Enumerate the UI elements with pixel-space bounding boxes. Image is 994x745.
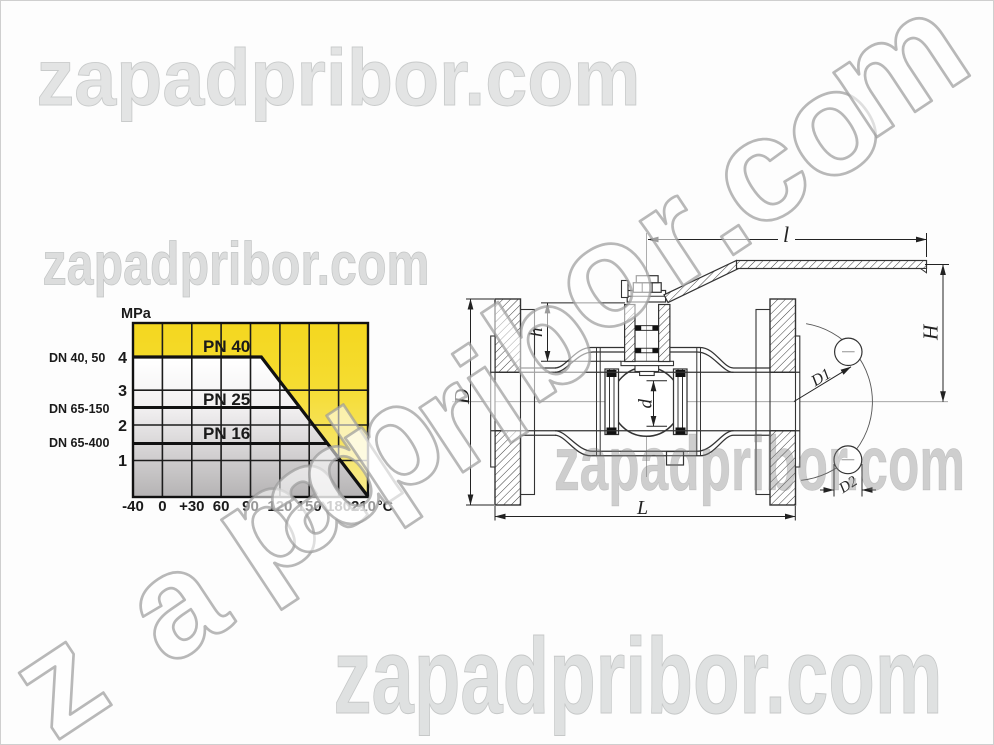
svg-text:3: 3 (118, 383, 127, 400)
svg-text:H: H (919, 323, 943, 341)
svg-text:0: 0 (158, 498, 166, 515)
svg-text:2: 2 (118, 418, 127, 435)
svg-text:DN 65-150: DN 65-150 (49, 402, 109, 416)
svg-text:zapadpribor.com: zapadpribor.com (37, 33, 641, 122)
svg-text:MPa: MPa (121, 306, 152, 322)
svg-text:DN 65-400: DN 65-400 (49, 436, 109, 450)
svg-text:d: d (636, 399, 657, 409)
svg-text:PN 25: PN 25 (203, 390, 250, 409)
svg-text:-40: -40 (122, 498, 144, 515)
svg-text:D1: D1 (808, 365, 834, 390)
svg-text:zapadpribor.com: zapadpribor.com (554, 421, 965, 507)
svg-text:DN 40, 50: DN 40, 50 (49, 351, 105, 365)
svg-text:PN 40: PN 40 (203, 337, 250, 356)
svg-text:zapadpribor.com: zapadpribor.com (334, 615, 943, 736)
svg-text:1: 1 (118, 453, 127, 470)
svg-text:4: 4 (118, 350, 127, 367)
svg-text:zapadpribor.com: zapadpribor.com (43, 231, 430, 298)
